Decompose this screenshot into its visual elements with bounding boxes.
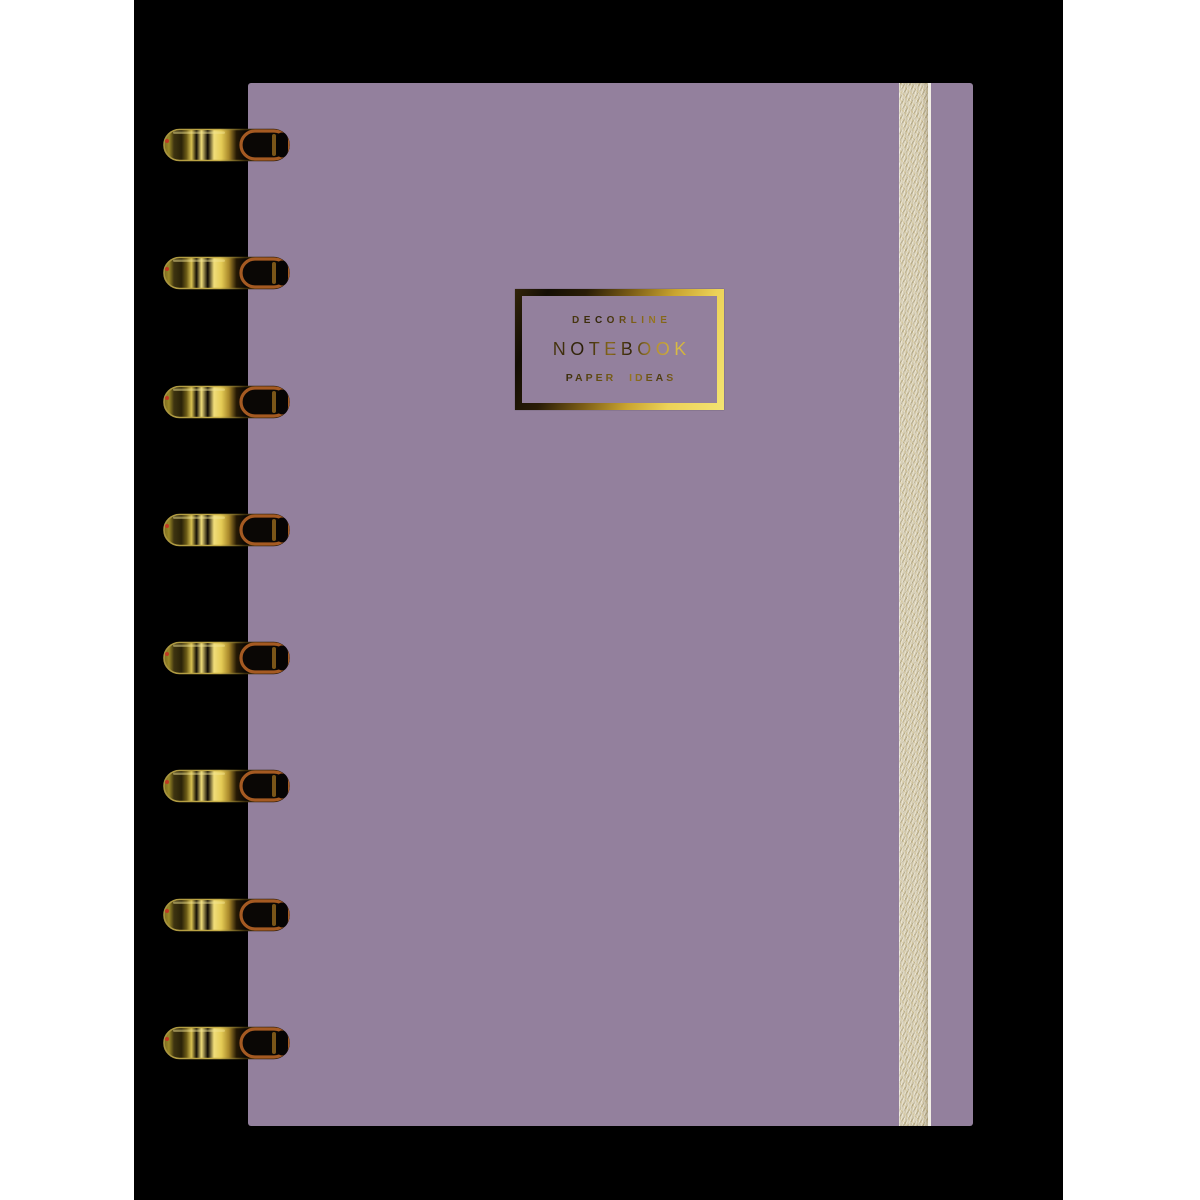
binding-ring-icon [163,1026,290,1060]
brand-logo-frame: DECORLINE NOTEBOOK PAPER IDEAS [515,289,724,410]
product-photo: DECORLINE NOTEBOOK PAPER IDEAS [0,0,1200,1200]
brand-line-bottom: PAPER IDEAS [566,373,676,384]
notebook-cover [248,83,973,1126]
binding-ring-icon [163,898,290,932]
binding-ring-icon [163,128,290,162]
binding-ring-icon [163,641,290,675]
binding-ring-icon [163,256,290,290]
brand-line-main: NOTEBOOK [553,340,691,359]
brand-line-top: DECORLINE [572,316,671,326]
elastic-band [899,83,931,1126]
brand-logo-panel: DECORLINE NOTEBOOK PAPER IDEAS [522,296,717,403]
binding-ring-icon [163,513,290,547]
binding-ring-icon [163,769,290,803]
binding-ring-icon [163,385,290,419]
